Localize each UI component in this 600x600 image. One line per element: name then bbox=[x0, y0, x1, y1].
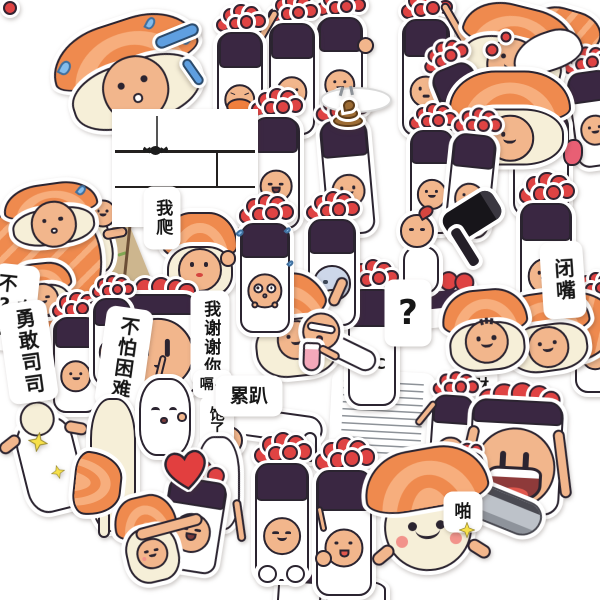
spider-icon bbox=[150, 146, 161, 155]
mouth bbox=[481, 337, 494, 348]
roe-icon bbox=[340, 0, 353, 13]
text-leipa: 累趴 bbox=[219, 379, 279, 413]
spider-panel bbox=[115, 112, 255, 224]
roe-icon bbox=[344, 201, 359, 216]
eye-left-icon bbox=[69, 372, 72, 375]
panel-card bbox=[115, 112, 255, 224]
mouth bbox=[503, 134, 516, 144]
mouth bbox=[51, 227, 58, 234]
eye-right-icon bbox=[278, 182, 283, 185]
face bbox=[463, 318, 511, 366]
roe-icon bbox=[251, 14, 265, 28]
panel-line bbox=[115, 150, 255, 153]
roe-icon bbox=[288, 98, 303, 113]
roe-icon bbox=[351, 0, 365, 12]
blush-icon bbox=[395, 535, 408, 548]
mouth bbox=[184, 532, 196, 542]
nori-band bbox=[319, 17, 362, 53]
hand-right bbox=[271, 301, 279, 309]
eye-right-icon bbox=[80, 372, 83, 375]
roe-icon bbox=[276, 100, 290, 114]
roe-icon bbox=[292, 6, 305, 19]
roe-icon bbox=[296, 443, 313, 460]
eye-right-icon bbox=[344, 81, 347, 84]
heart-icon bbox=[159, 445, 213, 495]
hair-icon bbox=[480, 318, 485, 324]
bald-nigiri bbox=[440, 285, 533, 374]
sparkle-icon bbox=[459, 522, 475, 538]
eye-left-icon bbox=[42, 218, 47, 223]
roe-icon bbox=[546, 185, 561, 200]
blush-icon bbox=[142, 557, 147, 562]
eye-left-icon bbox=[151, 407, 160, 414]
roe-icon bbox=[76, 302, 89, 315]
mouth bbox=[72, 374, 80, 381]
sparkle-icon bbox=[26, 430, 49, 453]
roe-icon bbox=[372, 271, 386, 285]
roe-icon bbox=[278, 204, 294, 220]
arm bbox=[232, 499, 247, 543]
roe-icon bbox=[112, 284, 123, 295]
loose-roe-2 bbox=[501, 32, 512, 43]
nori-band bbox=[433, 394, 474, 426]
eye-right-icon bbox=[204, 262, 208, 266]
hair-icon bbox=[485, 317, 489, 323]
eye-right-icon bbox=[140, 74, 149, 83]
gunkan-body bbox=[240, 224, 290, 333]
loose-roe-1 bbox=[486, 44, 499, 57]
tongue-icon bbox=[339, 549, 349, 557]
eye-left-icon bbox=[334, 541, 338, 545]
arm bbox=[465, 536, 493, 561]
text-xiexie: 我谢谢你 bbox=[194, 294, 226, 382]
face bbox=[578, 113, 600, 147]
sparkle-1 bbox=[26, 430, 49, 453]
roe-icon bbox=[426, 1, 440, 15]
eye-right-icon bbox=[169, 407, 178, 414]
sparkle-3 bbox=[459, 522, 475, 538]
hair-icon bbox=[490, 318, 494, 324]
hand-left bbox=[251, 301, 259, 309]
eye-left-icon bbox=[117, 82, 126, 91]
roe-icon bbox=[559, 183, 575, 199]
roe-icon bbox=[344, 450, 360, 466]
drinker bbox=[290, 303, 389, 389]
nori-band bbox=[309, 219, 356, 254]
eye-right-icon bbox=[349, 541, 353, 545]
eye-right-icon bbox=[552, 340, 557, 345]
nori-band bbox=[271, 23, 314, 59]
mouth bbox=[262, 294, 267, 299]
roe-dot-corner bbox=[3, 1, 17, 15]
hand-right bbox=[220, 250, 237, 267]
knee-left bbox=[258, 565, 277, 583]
text-wopa: 我爬 bbox=[147, 190, 177, 246]
roe-icon bbox=[240, 15, 253, 28]
nori-band bbox=[472, 398, 563, 427]
roe-icon bbox=[332, 202, 346, 216]
face bbox=[247, 273, 282, 308]
mouth bbox=[591, 127, 600, 134]
roe-icon bbox=[432, 114, 445, 127]
mouth bbox=[415, 518, 441, 540]
nori-band bbox=[254, 117, 299, 153]
roe-icon bbox=[282, 445, 298, 461]
nori-band bbox=[219, 32, 262, 67]
eye-right-icon bbox=[492, 335, 497, 340]
leg bbox=[98, 510, 110, 538]
glasses-icon bbox=[307, 321, 337, 335]
poop-icon bbox=[331, 97, 365, 127]
eye-right-icon bbox=[165, 339, 170, 357]
eye-right-icon bbox=[58, 216, 63, 221]
mouth bbox=[423, 95, 430, 98]
eye-left-icon bbox=[409, 228, 414, 231]
eye-left-icon bbox=[286, 335, 290, 339]
nori-band bbox=[521, 203, 571, 241]
mouth bbox=[148, 550, 157, 558]
roe-icon bbox=[303, 4, 317, 18]
hand-right bbox=[177, 412, 187, 422]
thumbs-gunkan bbox=[311, 436, 377, 596]
crawling-baby bbox=[1, 177, 104, 252]
roe-icon bbox=[501, 32, 512, 43]
eye-right-icon bbox=[435, 190, 438, 193]
spider-thread-icon bbox=[156, 116, 158, 147]
text-bizui: 闭嘴 bbox=[543, 244, 584, 316]
sticker-collage-canvas: 我爬闭嘴?在不?!勇敢司司不怕困难我谢谢你WC财嗝~饱了饱累趴啪 bbox=[0, 0, 600, 600]
mouth bbox=[542, 342, 554, 352]
mouth bbox=[132, 92, 144, 104]
eye-left-icon bbox=[231, 92, 237, 95]
victim-head bbox=[400, 214, 434, 248]
roe-icon bbox=[585, 55, 599, 69]
roe-icon bbox=[265, 206, 280, 221]
text-question: ? bbox=[388, 283, 428, 343]
eye-left-icon bbox=[190, 262, 194, 266]
eye-right-icon bbox=[420, 228, 425, 231]
scared-gunkan bbox=[235, 193, 295, 333]
face bbox=[60, 361, 91, 392]
panel-line bbox=[216, 150, 219, 186]
eye-left-icon bbox=[268, 182, 273, 185]
eye-left-icon bbox=[419, 87, 422, 90]
nori-band bbox=[241, 223, 289, 259]
cup-rim bbox=[305, 344, 319, 349]
roe-icon bbox=[454, 381, 467, 394]
mouth bbox=[160, 417, 168, 425]
eye-left-icon bbox=[333, 81, 336, 84]
eye-right-icon bbox=[194, 528, 201, 533]
knee-right bbox=[286, 565, 305, 583]
roe-icon bbox=[486, 44, 499, 57]
roe-icon bbox=[476, 118, 490, 132]
heart-icon bbox=[159, 445, 213, 495]
nori-band bbox=[317, 470, 371, 511]
nori-band bbox=[452, 132, 497, 170]
roe-icon bbox=[122, 283, 134, 295]
panel-line bbox=[115, 186, 255, 189]
mouth bbox=[316, 335, 323, 342]
gunkan-body bbox=[316, 471, 371, 596]
roe-icon bbox=[3, 1, 17, 15]
